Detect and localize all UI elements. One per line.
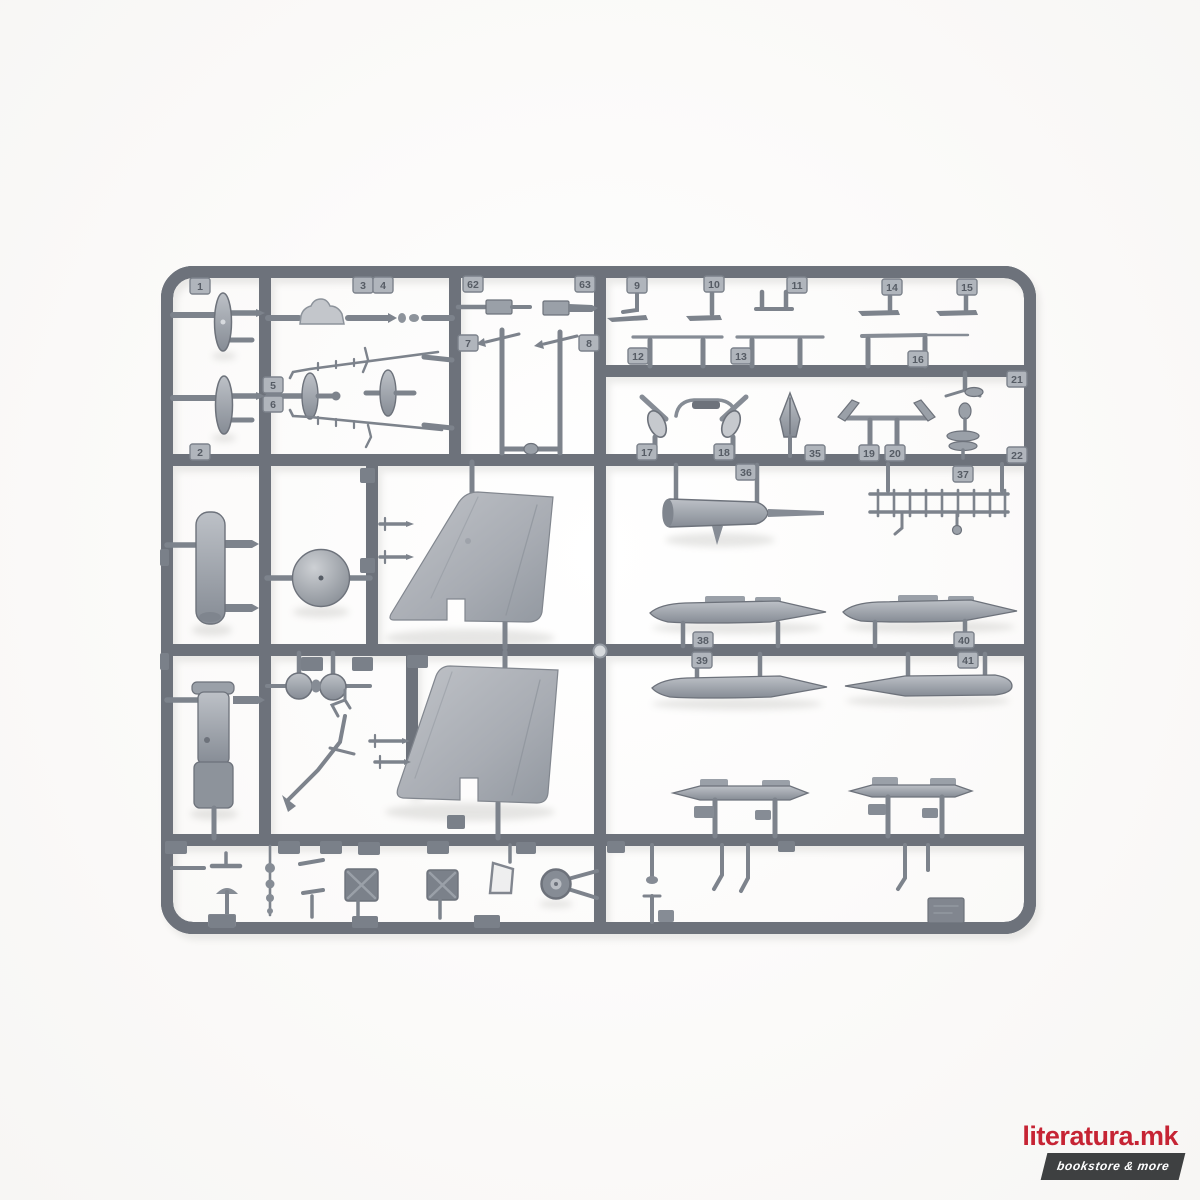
svg-text:16: 16 [912, 354, 924, 366]
svg-text:5: 5 [270, 380, 276, 392]
part-number-tag: 12 [628, 348, 648, 364]
part-drop-tank-upper-right [843, 595, 1017, 646]
part-number-tag: 7 [458, 335, 478, 351]
part-disc-top [173, 293, 265, 351]
svg-text:14: 14 [886, 282, 898, 294]
part-number-tag: 20 [885, 445, 905, 461]
svg-text:2: 2 [197, 447, 203, 459]
part-number-tag: 19 [859, 445, 879, 461]
part-twin-masts [476, 330, 577, 455]
part-number-tag: 21 [1007, 371, 1027, 387]
part-blade-14 [858, 296, 900, 316]
part-number-tag: 62 [463, 276, 483, 292]
part-crossed-box-2 [427, 870, 458, 918]
svg-text:36: 36 [740, 467, 752, 479]
svg-text:22: 22 [1011, 450, 1023, 462]
part-number-tag: 14 [882, 279, 902, 295]
part-gear-leg [282, 690, 354, 812]
svg-text:7: 7 [465, 338, 471, 350]
part-number-tag: 6 [263, 396, 283, 412]
svg-text:6: 6 [270, 399, 276, 411]
svg-text:4: 4 [380, 280, 386, 292]
svg-text:3: 3 [360, 280, 366, 292]
part-angled-bars [300, 860, 323, 917]
part-number-tag: 9 [627, 277, 647, 293]
part-number-tag: 13 [731, 348, 751, 364]
svg-text:9: 9 [634, 280, 640, 292]
part-blade-15 [936, 296, 978, 316]
part-pylon-group-left [673, 779, 808, 836]
part-number-tag: 63 [575, 276, 595, 292]
part-number-tag: 5 [263, 377, 283, 393]
part-number-tag: 17 [637, 444, 657, 460]
part-mini-missiles-lower [370, 735, 411, 768]
part-windscreen-outline [490, 845, 513, 893]
part-number-tag: 8 [579, 335, 599, 351]
svg-text:15: 15 [961, 282, 973, 294]
part-small-column-21 [946, 373, 983, 458]
svg-text:39: 39 [696, 655, 708, 667]
part-u-channel [756, 292, 792, 309]
part-number-tag: 2 [190, 444, 210, 460]
sprue-parts [160, 292, 1017, 928]
part-pin-blade-10 [686, 292, 722, 321]
svg-text:13: 13 [735, 351, 747, 363]
part-number-tag: 1 [190, 278, 210, 294]
part-molded-tab [928, 898, 964, 923]
svg-text:12: 12 [632, 351, 644, 363]
sprue-photo: 1234566263789101114151213162117183519202… [0, 0, 1200, 1200]
part-hanging-legs [644, 845, 928, 922]
svg-text:62: 62 [467, 279, 479, 291]
part-blade-left [607, 293, 648, 322]
rod-support-pins [650, 338, 925, 366]
part-dart-35 [780, 393, 800, 456]
ejector-pin-mark [594, 645, 607, 658]
svg-text:17: 17 [641, 447, 653, 459]
part-number-tag: 22 [1007, 447, 1027, 463]
svg-text:20: 20 [889, 448, 901, 460]
part-boarding-ladder [870, 464, 1008, 535]
part-number-tag: 16 [908, 351, 928, 367]
part-number-tag: 3 [353, 277, 373, 293]
part-number-tag: 10 [704, 276, 724, 292]
svg-text:35: 35 [809, 448, 821, 460]
part-flat-plates [458, 300, 598, 315]
part-number-tag: 39 [692, 652, 712, 668]
part-number-tag: 40 [954, 632, 974, 648]
part-spinner-dome [267, 550, 370, 607]
svg-text:38: 38 [697, 635, 709, 647]
part-exhaust-pipe [167, 512, 259, 624]
watermark-banner: bookstore & more [1040, 1153, 1185, 1180]
product-photo: 1234566263789101114151213162117183519202… [0, 0, 1200, 1200]
part-number-tag: 11 [787, 277, 807, 293]
part-number-tag: 38 [693, 632, 713, 648]
part-long-rods [633, 335, 968, 337]
svg-text:1: 1 [197, 281, 203, 293]
svg-text:37: 37 [957, 469, 969, 481]
part-tail-fin-upper [390, 462, 553, 648]
watermark-logo-text: literatura.mk [1022, 1123, 1178, 1150]
part-number-tag: 35 [805, 445, 825, 461]
part-drop-tank-upper-left [650, 596, 826, 646]
part-t-bar [172, 853, 240, 868]
part-number-tag: 36 [736, 464, 756, 480]
part-antenna-upper [290, 348, 452, 378]
svg-text:19: 19 [863, 448, 875, 460]
svg-text:41: 41 [962, 655, 974, 667]
svg-text:8: 8 [586, 338, 592, 350]
part-number-tag: 37 [953, 466, 973, 482]
part-crossed-box-1 [345, 869, 378, 920]
part-disc-bottom [173, 376, 265, 434]
svg-text:11: 11 [791, 280, 802, 292]
svg-text:10: 10 [708, 279, 720, 291]
part-number-tag: 41 [958, 652, 978, 668]
part-tank-body [167, 682, 265, 838]
svg-text:63: 63 [579, 279, 591, 291]
part-number-tag: 18 [714, 444, 734, 460]
part-number-tag: 15 [957, 279, 977, 295]
part-mini-missiles-upper [380, 518, 414, 563]
svg-text:40: 40 [958, 635, 970, 647]
part-canopy-section [268, 299, 452, 324]
part-number-tag: 4 [373, 277, 393, 293]
svg-text:18: 18 [718, 447, 730, 459]
part-pylon-group-right [850, 777, 972, 836]
watermark-subtitle: bookstore & more [1056, 1159, 1171, 1173]
part-wheel-hub [542, 870, 598, 899]
watermark: literatura.mk bookstore & more [1022, 1123, 1178, 1180]
svg-text:21: 21 [1011, 374, 1023, 386]
part-bead-chain [265, 846, 275, 915]
